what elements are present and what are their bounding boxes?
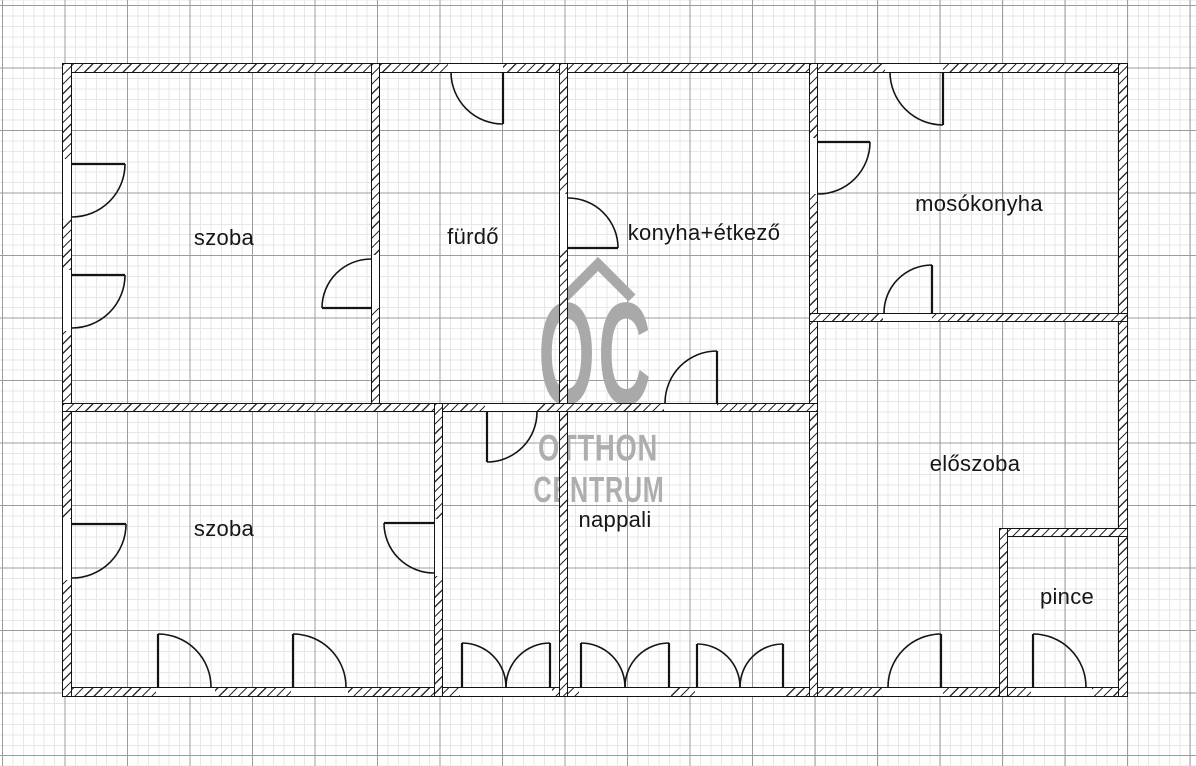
floorplan-canvas: OC OTTHON CENTRUM	[0, 0, 1196, 766]
room-label-szoba-top: szoba	[194, 225, 254, 251]
room-label-furdo: fürdő	[447, 224, 499, 250]
room-label-mosokonyha: mosókonyha	[915, 191, 1043, 217]
door-arc	[740, 644, 783, 687]
room-label-pince: pince	[1040, 584, 1094, 610]
door-arc	[884, 265, 932, 313]
room-label-szoba-bottom: szoba	[194, 516, 254, 542]
door-arc	[72, 524, 126, 578]
door-arc	[697, 644, 740, 687]
door-arc	[384, 523, 434, 573]
door-arc	[487, 412, 537, 462]
door-arc	[451, 72, 503, 124]
door-arc	[72, 275, 125, 328]
door-arc	[665, 351, 717, 403]
door-arc	[568, 198, 618, 248]
door-arc	[581, 643, 625, 687]
door-arc	[625, 643, 669, 687]
room-label-eloszoba: előszoba	[930, 451, 1020, 477]
door-arc	[72, 164, 125, 217]
door-arcs	[72, 72, 1086, 687]
door-arc	[888, 634, 941, 687]
room-label-konyha: konyha+étkező	[628, 220, 781, 246]
door-arc	[293, 634, 346, 687]
door-arc	[1033, 634, 1086, 687]
door-arc	[158, 634, 211, 687]
room-label-nappali: nappali	[578, 507, 651, 533]
door-arc	[322, 259, 371, 308]
door-arc	[506, 643, 550, 687]
door-leaves	[72, 72, 1033, 687]
door-arc	[890, 72, 943, 125]
door-arc	[462, 643, 506, 687]
door-swing-overlay	[0, 0, 1196, 766]
door-arc	[818, 142, 870, 194]
